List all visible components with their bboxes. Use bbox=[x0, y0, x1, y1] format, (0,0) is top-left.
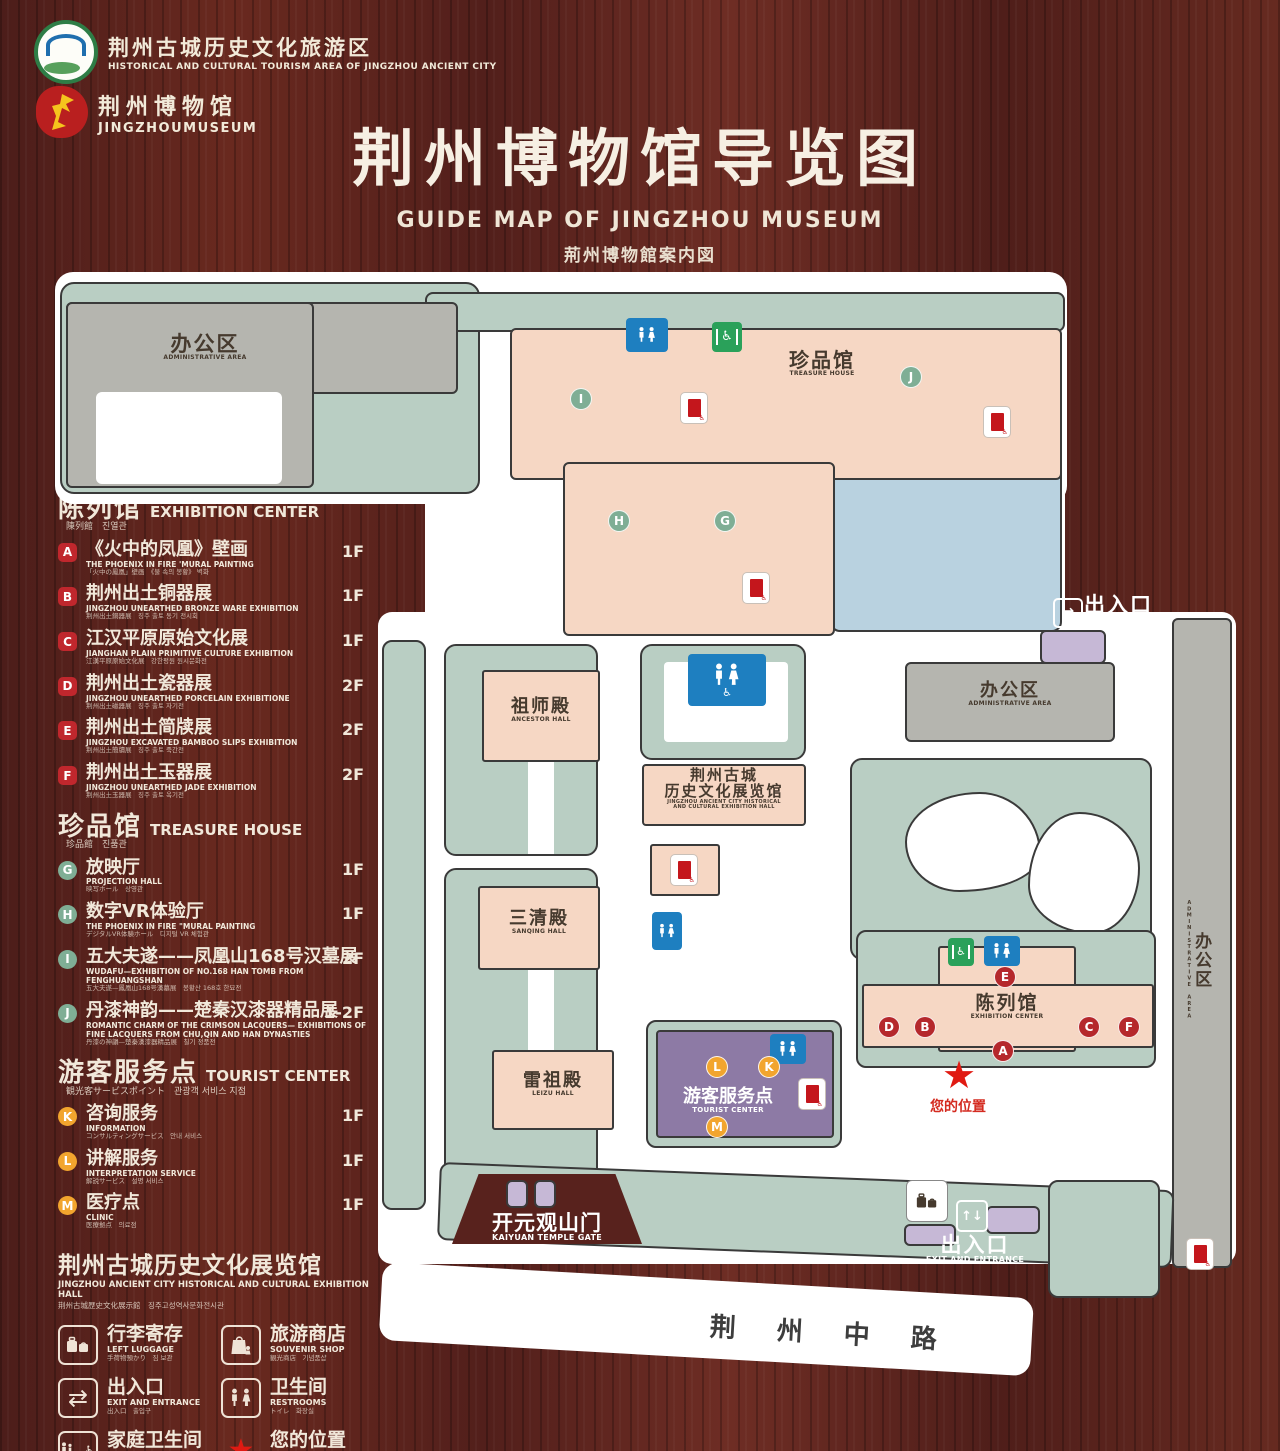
elevator-icon: ♿ bbox=[1186, 1238, 1214, 1270]
lawn-west-strip bbox=[382, 640, 426, 1210]
your-location-star-icon: ★ bbox=[942, 1056, 976, 1094]
label-kaiyuan-gate: 开元观山门 KAIYUAN TEMPLE GATE bbox=[452, 1212, 642, 1242]
map-path bbox=[428, 470, 520, 630]
label-ancestor-hall: 祖师殿 ANCESTOR HALL bbox=[486, 698, 596, 723]
accessible-elevator-icon: ♿ bbox=[712, 322, 742, 352]
restrooms-family-icon: ♿ bbox=[688, 654, 766, 706]
gate-pillar bbox=[534, 1180, 556, 1208]
label-admin-right: 办公区 ADMINISTRATIVE AREA bbox=[935, 682, 1085, 707]
label-treasure-house: 珍品馆 TREASURE HOUSE bbox=[742, 350, 902, 377]
gate-structure bbox=[1040, 630, 1106, 664]
label-exhibition-center: 陈列馆 EXHIBITION CENTER bbox=[932, 994, 1082, 1020]
site-map: 办公区 ADMINISTRATIVE AREA 珍品馆 TREASURE HOU… bbox=[0, 0, 1280, 1451]
label-history-hall: 荆州古城 历史文化展览馆 JINGZHOU ANCIENT CITY HISTO… bbox=[644, 768, 804, 810]
marker-L: L bbox=[706, 1056, 728, 1078]
lawn-southeast bbox=[1048, 1180, 1160, 1298]
marker-F: F bbox=[1118, 1016, 1140, 1038]
label-exit-bottom: 出入口 EXIT AND ENTRANCE bbox=[900, 1234, 1050, 1264]
exit-entrance-icon: ↑↓ bbox=[956, 1200, 988, 1232]
courtyard bbox=[96, 392, 282, 484]
restrooms-icon bbox=[984, 936, 1020, 966]
label-sanqing-hall: 三清殿 SANQING HALL bbox=[482, 910, 596, 935]
label-road: 荆 州 中 路 bbox=[709, 1306, 954, 1357]
gate-pillar bbox=[506, 1180, 528, 1208]
elevator-icon: ♿ bbox=[680, 392, 708, 424]
restrooms-icon bbox=[652, 912, 682, 950]
label-admin-strip: 办公区 ADMINISTRATIVE AREA bbox=[1186, 860, 1209, 1060]
marker-A: A bbox=[992, 1040, 1014, 1062]
gate-structure bbox=[986, 1206, 1040, 1234]
marker-E: E bbox=[994, 966, 1016, 988]
marker-J: J bbox=[900, 366, 922, 388]
marker-G: G bbox=[714, 510, 736, 532]
guide-map-poster: 荆州古城历史文化旅游区 HISTORICAL AND CULTURAL TOUR… bbox=[0, 0, 1280, 1451]
restrooms-icon bbox=[626, 318, 668, 352]
elevator-icon: ♿ bbox=[742, 572, 770, 604]
label-tourist-center: 游客服务点 TOURIST CENTER bbox=[658, 1088, 798, 1114]
map-path bbox=[528, 760, 554, 854]
building-treasure-house-wing bbox=[563, 462, 835, 636]
label-your-location: 您的位置 bbox=[930, 1096, 986, 1116]
marker-B: B bbox=[914, 1016, 936, 1038]
elevator-icon: ♿ bbox=[670, 854, 698, 886]
marker-D: D bbox=[878, 1016, 900, 1038]
marker-H: H bbox=[608, 510, 630, 532]
exit-entrance-icon: ⇄ bbox=[1053, 598, 1083, 628]
map-path bbox=[528, 966, 554, 1054]
marker-K: K bbox=[758, 1056, 780, 1078]
elevator-icon: ♿ bbox=[798, 1078, 826, 1110]
pond bbox=[905, 792, 1041, 892]
marker-M: M bbox=[706, 1116, 728, 1138]
elevator-icon: ♿ bbox=[983, 406, 1011, 438]
accessible-elevator-icon: ♿ bbox=[948, 938, 974, 966]
pond bbox=[1028, 812, 1140, 934]
lawn-top-strip bbox=[425, 292, 1065, 332]
marker-C: C bbox=[1078, 1016, 1100, 1038]
label-admin-top: 办公区 ADMINISTRATIVE AREA bbox=[130, 333, 280, 361]
marker-I: I bbox=[570, 388, 592, 410]
left-luggage-icon bbox=[906, 1180, 948, 1222]
road-jingzhou-middle: 荆 州 中 路 bbox=[379, 1262, 1034, 1376]
label-leizu-hall: 雷祖殿 LEIZU HALL bbox=[496, 1072, 610, 1097]
